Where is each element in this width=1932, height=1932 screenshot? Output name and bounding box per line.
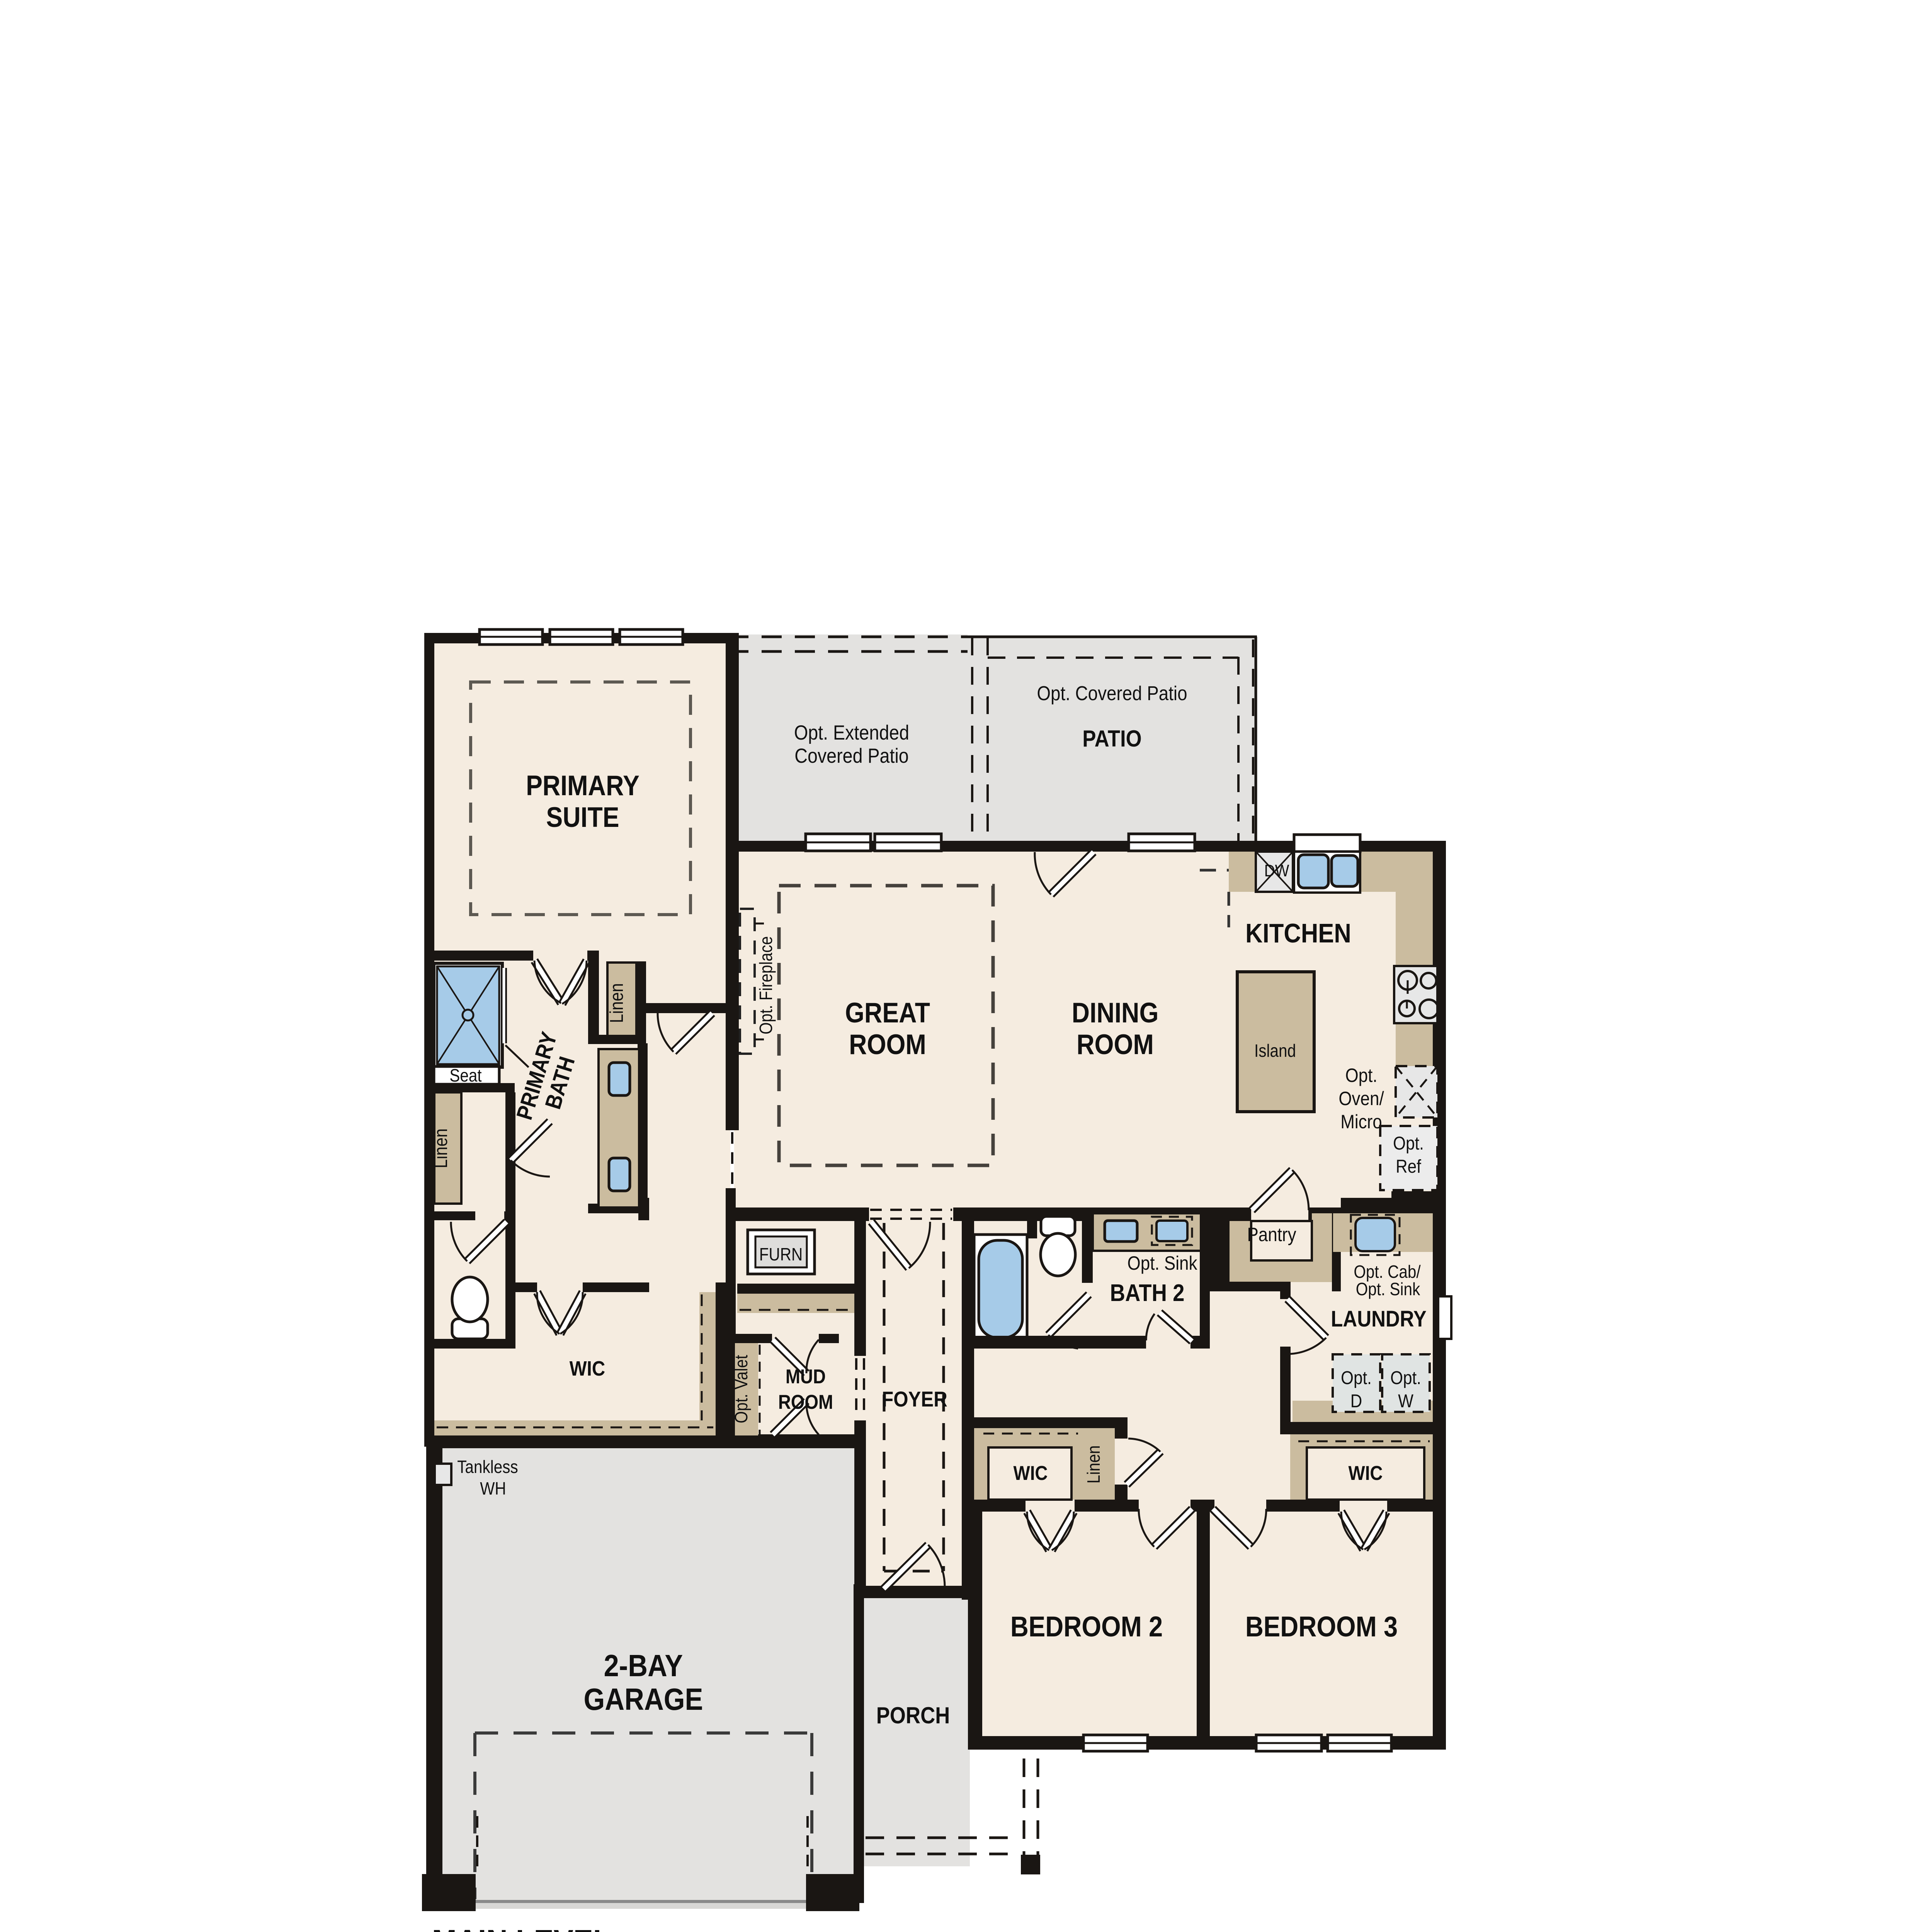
svg-text:GREAT: GREAT [845,997,930,1029]
svg-text:Tankless: Tankless [457,1458,518,1477]
svg-text:2-BAY: 2-BAY [604,1648,683,1683]
svg-text:DW: DW [1264,861,1289,880]
svg-text:Opt. Cab/: Opt. Cab/ [1354,1262,1421,1282]
svg-text:BEDROOM 2: BEDROOM 2 [1010,1611,1163,1643]
svg-text:Opt. Sink: Opt. Sink [1356,1280,1420,1299]
svg-text:Opt. Sink: Opt. Sink [1128,1252,1197,1274]
svg-text:Seat: Seat [449,1066,481,1086]
svg-text:Opt.: Opt. [1390,1367,1421,1388]
svg-text:Island: Island [1254,1041,1296,1061]
svg-text:ROOM: ROOM [849,1029,926,1060]
svg-text:KITCHEN: KITCHEN [1245,918,1351,948]
svg-text:BEDROOM 3: BEDROOM 3 [1245,1611,1398,1643]
svg-text:FURN: FURN [759,1245,803,1265]
svg-text:Opt. Covered Patio: Opt. Covered Patio [1037,682,1187,704]
svg-text:Opt. Fireplace: Opt. Fireplace [757,936,776,1034]
svg-text:Opt.: Opt. [1341,1367,1372,1388]
svg-text:PORCH: PORCH [876,1702,950,1728]
svg-text:Opt.: Opt. [1345,1064,1377,1086]
svg-text:PRIMARY: PRIMARY [526,770,639,801]
svg-text:ROOM: ROOM [778,1391,833,1413]
svg-text:W: W [1398,1390,1413,1411]
svg-text:Linen: Linen [606,983,627,1023]
svg-text:Pantry: Pantry [1247,1223,1296,1245]
svg-text:Opt.: Opt. [1393,1133,1424,1153]
svg-text:Ref: Ref [1396,1156,1421,1177]
svg-text:WIC: WIC [570,1357,605,1380]
svg-text:GARAGE: GARAGE [584,1682,703,1716]
svg-text:D: D [1350,1390,1362,1411]
svg-text:WIC: WIC [1014,1462,1048,1484]
svg-text:ROOM: ROOM [1077,1029,1154,1060]
svg-text:WH: WH [480,1479,506,1499]
svg-text:SUITE: SUITE [546,801,619,833]
svg-text:Linen: Linen [430,1128,451,1168]
svg-text:Covered Patio: Covered Patio [794,744,908,767]
svg-text:WIC: WIC [1349,1462,1383,1484]
svg-text:MUD: MUD [786,1366,826,1388]
svg-text:Oven/: Oven/ [1338,1087,1384,1109]
svg-text:PATIO: PATIO [1082,726,1141,752]
svg-text:BATH 2: BATH 2 [1110,1280,1185,1306]
svg-text:LAUNDRY: LAUNDRY [1331,1306,1427,1332]
svg-text:DINING: DINING [1072,997,1159,1029]
svg-text:Opt. Extended: Opt. Extended [794,721,909,744]
svg-text:FOYER: FOYER [882,1387,947,1412]
svg-text:Linen: Linen [1084,1445,1104,1483]
svg-text:Opt. Valet: Opt. Valet [732,1355,752,1423]
svg-text:Micro: Micro [1340,1111,1382,1132]
svg-text:MAIN LEVEL: MAIN LEVEL [432,1923,611,1932]
